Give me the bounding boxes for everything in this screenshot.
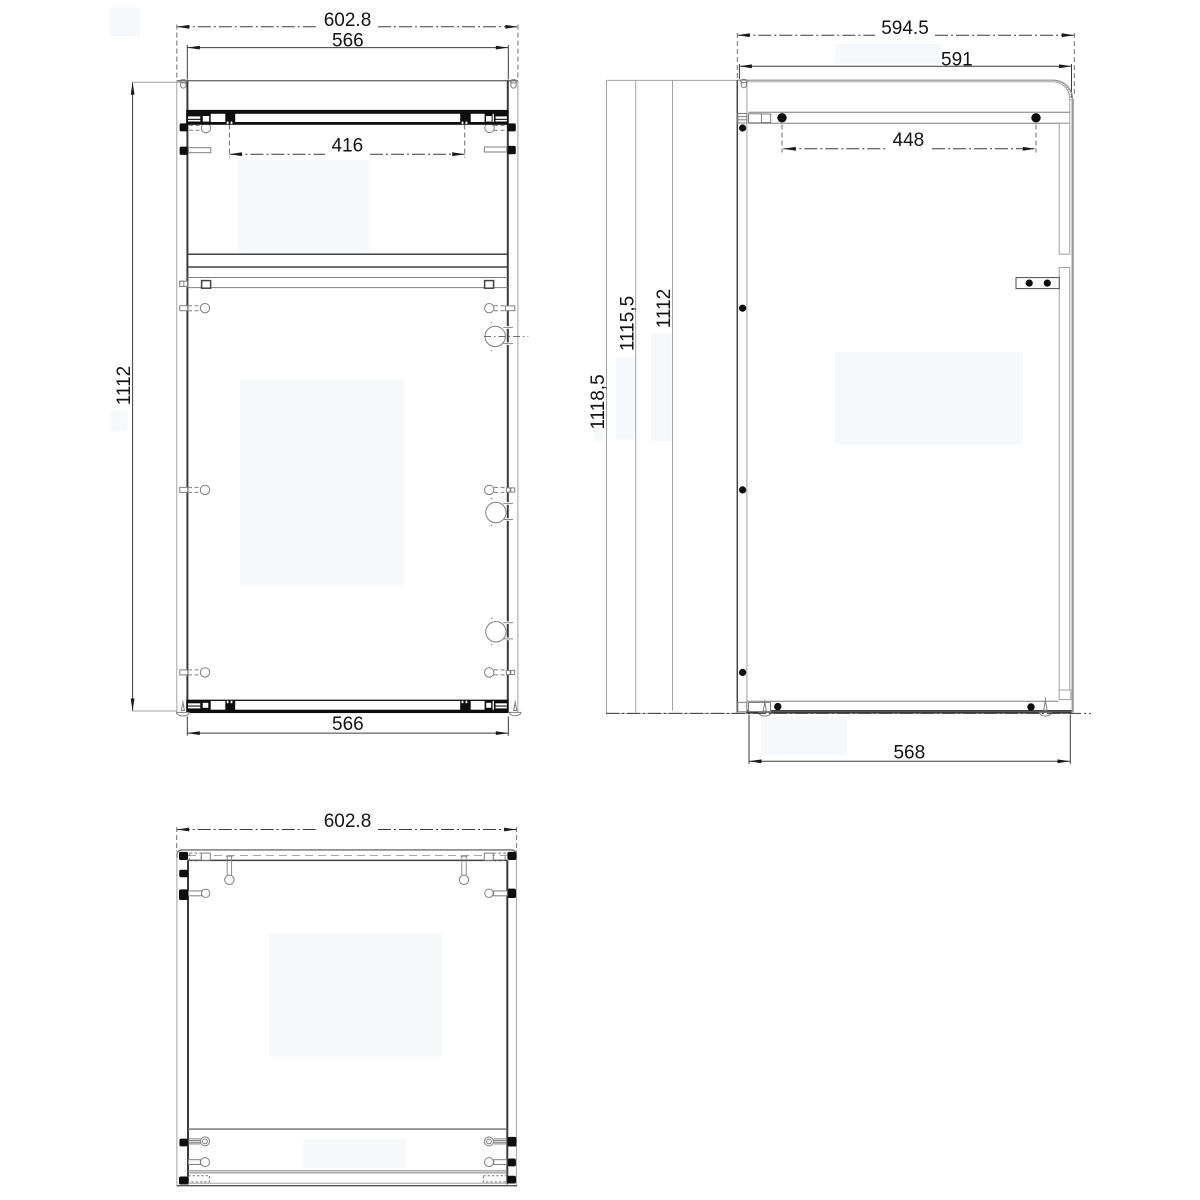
svg-text:1118,5: 1118,5 — [588, 374, 609, 429]
svg-text:448: 448 — [893, 130, 925, 151]
svg-text:1115,5: 1115,5 — [617, 296, 638, 351]
svg-text:1112: 1112 — [114, 366, 135, 405]
svg-text:1112: 1112 — [654, 289, 675, 328]
svg-text:591: 591 — [941, 49, 973, 70]
svg-text:602.8: 602.8 — [324, 811, 372, 832]
svg-text:568: 568 — [893, 742, 925, 763]
svg-text:416: 416 — [331, 136, 363, 157]
svg-text:594.5: 594.5 — [881, 18, 929, 39]
svg-text:602.8: 602.8 — [324, 10, 372, 31]
svg-text:566: 566 — [332, 31, 364, 52]
svg-text:566: 566 — [332, 714, 364, 735]
